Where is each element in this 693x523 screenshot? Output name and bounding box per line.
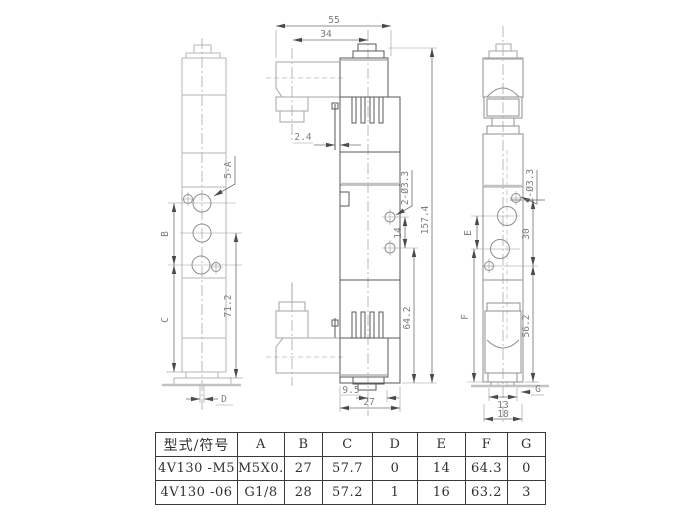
table-header-e: E (418, 433, 466, 457)
table-cell: 16 (418, 481, 466, 505)
dim-label-64-2: 64.2 (402, 307, 413, 330)
table-cell: 3 (508, 481, 546, 505)
table-row: 4V130 -06 G1/8 28 57.2 1 16 63.2 3 (156, 481, 546, 505)
table-cell: 57.2 (323, 481, 373, 505)
dim-label-71-2: 71.2 (223, 295, 234, 318)
dimension-table: 型式/符号 A B C D E F G 4V130 -M5 M5X0.8 27 … (155, 432, 546, 505)
table-header-b: B (285, 433, 323, 457)
table-row: 4V130 -M5 M5X0.8 27 57.7 0 14 64.3 0 (156, 457, 546, 481)
right-side-view: 2-Ø3.3 E F 30 56.2 G 13 18 (460, 26, 549, 422)
hole-note-label-right: 2-Ø3.3 (525, 169, 536, 203)
drawing-sheet: 5-A B C 71.2 D (0, 0, 693, 523)
table-cell: 57.7 (323, 457, 373, 481)
dim-label-2-4: 2.4 (294, 132, 311, 143)
hole-note-label-front: 2-Ø3.3 (400, 171, 411, 205)
table-header-g: G (508, 433, 546, 457)
dim-label-14: 14 (393, 227, 404, 239)
table-cell-model: 4V130 -M5 (156, 457, 238, 481)
table-header-row: 型式/符号 A B C D E F G (156, 433, 546, 457)
dim-label-157-4: 157.4 (420, 205, 431, 234)
port-note-label: 5-A (223, 161, 234, 178)
dim-label-e: E (463, 230, 474, 236)
left-view-base (162, 372, 241, 385)
dim-label-34: 34 (320, 29, 332, 40)
dim-label-b: B (160, 231, 171, 237)
table-header-a: A (238, 433, 285, 457)
front-body (340, 97, 400, 383)
table-cell-model: 4V130 -06 (156, 481, 238, 505)
table-cell: G1/8 (238, 481, 285, 505)
table-cell: M5X0.8 (238, 457, 285, 481)
dim-label-f: F (460, 314, 471, 320)
table-cell: 64.3 (466, 457, 508, 481)
table-cell: 14 (418, 457, 466, 481)
left-view-ports (192, 194, 211, 274)
table-header-model: 型式/符号 (156, 433, 238, 457)
table-header-c: C (323, 433, 373, 457)
dim-label-27: 27 (363, 397, 374, 408)
right-ports (482, 191, 523, 273)
table-cell: 27 (285, 457, 323, 481)
front-top-cap (353, 44, 384, 58)
left-side-view: 5-A B C 71.2 D (160, 38, 243, 410)
table-cell: 28 (285, 481, 323, 505)
dim-label-55: 55 (328, 15, 339, 26)
dim-label-c: C (160, 317, 171, 323)
front-view: 55 34 2.4 2-Ø3.3 14 64.2 157.4 9.5 27 (266, 15, 437, 416)
table-header-f: F (466, 433, 508, 457)
front-top-solenoid (276, 58, 388, 150)
dim-label-30: 30 (521, 228, 532, 240)
table-cell: 63.2 (466, 481, 508, 505)
dim-label-9-5: 9.5 (342, 385, 359, 396)
table-cell: 0 (373, 457, 418, 481)
left-view-body (182, 58, 226, 372)
front-bottom-solenoid (276, 284, 388, 390)
table-cell: 0 (508, 457, 546, 481)
dim-label-56-2: 56.2 (521, 315, 532, 338)
dim-label-d: D (221, 394, 227, 405)
table-header-d: D (373, 433, 418, 457)
dim-label-g: G (535, 384, 541, 395)
dim-label-18: 18 (497, 409, 509, 420)
table-cell: 1 (373, 481, 418, 505)
left-view-cap (186, 45, 220, 58)
